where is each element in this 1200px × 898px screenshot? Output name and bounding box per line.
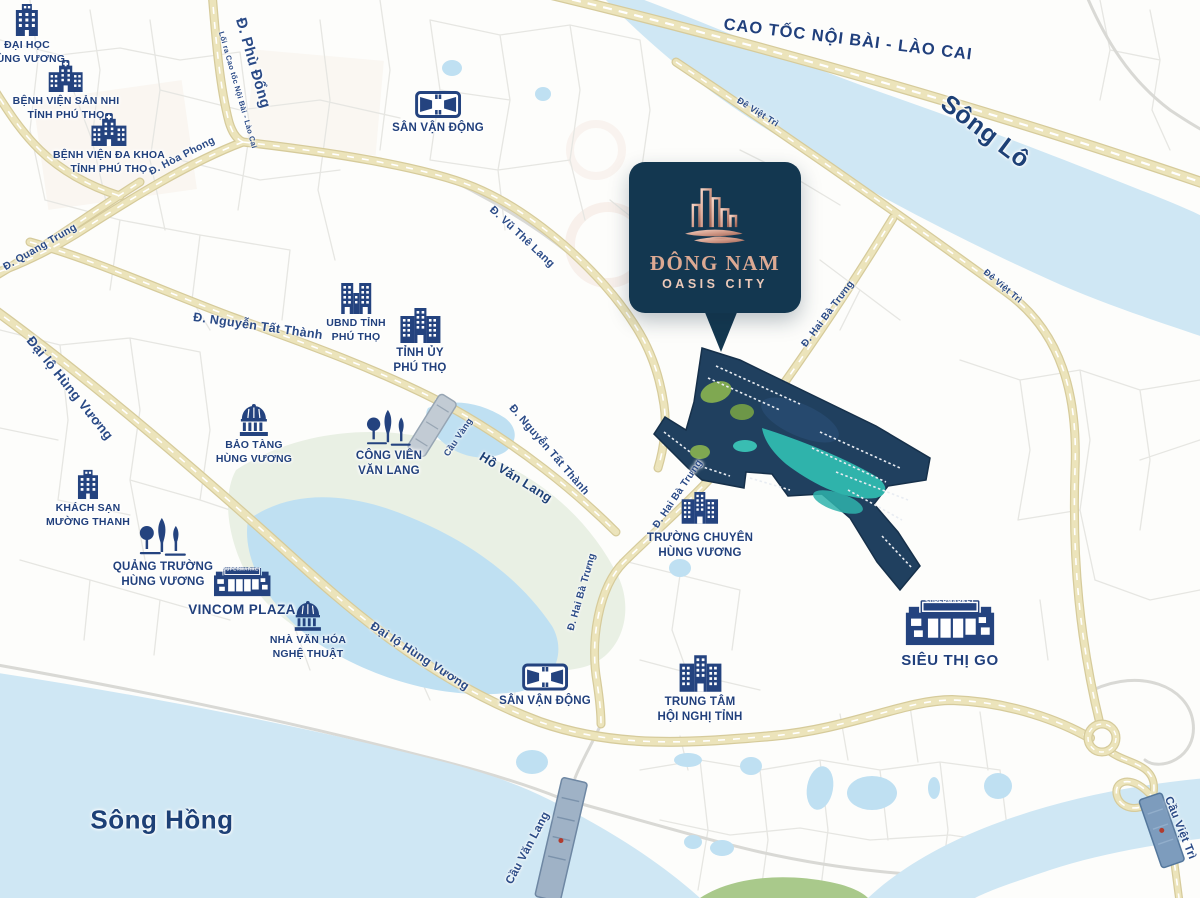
theater-dome-icon — [294, 600, 322, 631]
museum-dome-icon — [239, 403, 269, 436]
landmark-bao-tang: BẢO TÀNGHÙNG VƯƠNG — [216, 403, 292, 466]
location-map: ĐẠI HỌCHÙNG VƯƠNG BỆNH VIỆN SẢN NHITỈNH … — [0, 0, 1200, 898]
landmark-benh-vien-da-khoa: BỆNH VIỆN ĐA KHOATỈNH PHÚ THỌ — [53, 113, 165, 176]
office-building-icon — [398, 306, 442, 343]
landmark-label: UBND TỈNHPHÚ THỌ — [326, 317, 386, 344]
supermarket-icon: SUPERMARKET — [894, 598, 1006, 648]
project-logo-card: ĐÔNG NAM OASIS CITY — [629, 162, 801, 313]
government-building-icon — [338, 280, 374, 314]
stadium-icon — [415, 91, 461, 118]
landmark-san-van-dong-nam: SÂN VẬN ĐỘNG — [499, 663, 591, 709]
landmark-dai-hoc-hung-vuong: ĐẠI HỌCHÙNG VƯƠNG — [0, 2, 65, 66]
landmark-label: CÔNG VIÊNVĂN LANG — [356, 449, 422, 479]
landmark-label: NHÀ VĂN HÓANGHỆ THUẬT — [270, 634, 346, 661]
landmark-ubnd-tinh: UBND TỈNHPHÚ THỌ — [326, 280, 386, 344]
landmark-label: BỆNH VIỆN ĐA KHOATỈNH PHÚ THỌ — [53, 149, 165, 176]
project-subtitle: OASIS CITY — [662, 277, 768, 291]
school-icon — [680, 486, 720, 528]
landmark-label: SÂN VẬN ĐỘNG — [499, 694, 591, 709]
project-name: ĐÔNG NAM — [650, 251, 780, 276]
landmark-label: TRUNG TÂMHỘI NGHỊ TỈNH — [657, 695, 742, 725]
landmark-tinh-uy: TỈNH ỦYPHÚ THỌ — [393, 306, 446, 376]
landmark-label: SÂN VẬN ĐỘNG — [392, 121, 484, 136]
landmark-truong-chuyen: TRƯỜNG CHUYÊNHÙNG VƯƠNG — [647, 486, 753, 561]
landmark-trung-tam-hoi-nghi: TRUNG TÂMHỘI NGHỊ TỈNH — [657, 653, 742, 725]
landmark-san-van-dong-bac: SÂN VẬN ĐỘNG — [392, 91, 484, 136]
project-logo-icon — [671, 185, 759, 247]
square-trees-icon — [138, 515, 188, 557]
landmark-sieu-thi-go: SUPERMARKET SIÊU THỊ GO — [894, 598, 1006, 671]
park-trees-icon — [365, 408, 413, 446]
convention-center-icon — [677, 653, 723, 692]
hospital-icon — [89, 113, 129, 146]
landmark-label: TRƯỜNG CHUYÊNHÙNG VƯƠNG — [647, 531, 753, 561]
landmark-label: TỈNH ỦYPHÚ THỌ — [393, 346, 446, 376]
river-label-song-hong: Sông Hồng — [90, 805, 233, 836]
landmark-label: SIÊU THỊ GO — [901, 651, 998, 671]
stadium-icon — [522, 663, 568, 691]
landmark-label: BẢO TÀNGHÙNG VƯƠNG — [216, 439, 292, 466]
hospital-icon — [47, 60, 85, 92]
map-canvas — [0, 0, 1200, 898]
hotel-icon — [71, 468, 105, 499]
landmark-nha-van-hoa: NHÀ VĂN HÓANGHỆ THUẬT — [270, 600, 346, 661]
landmark-cong-vien-van-lang: CÔNG VIÊNVĂN LANG — [356, 408, 422, 479]
mall-icon: SUPERMARKET — [203, 566, 281, 598]
university-icon — [13, 2, 41, 36]
